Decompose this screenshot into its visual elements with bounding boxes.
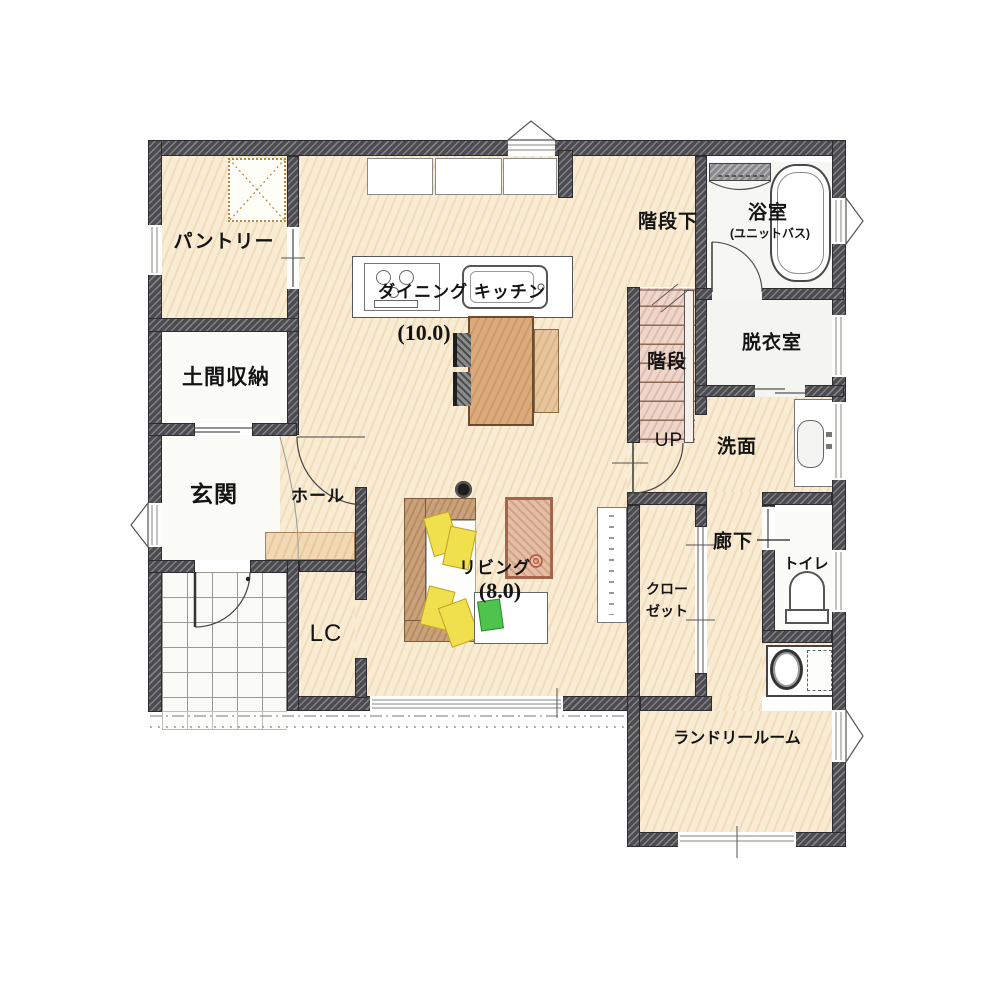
stairs-up-label: UP	[655, 430, 683, 452]
dining-kitchen-size: (10.0)	[397, 320, 450, 346]
entrance-label: 玄関	[190, 475, 238, 509]
bathroom-sublabel: (ユニットバス)	[730, 225, 810, 242]
stairs-label: 階段	[647, 347, 687, 374]
doma-storage-label: 土間収納	[182, 361, 270, 391]
changing-room-label: 脱衣室	[742, 328, 802, 355]
washroom-label: 洗面	[717, 432, 757, 459]
closet-label-line1: クロー	[646, 579, 688, 599]
plan-linework	[0, 0, 995, 1000]
bathroom-label: 浴室	[748, 198, 788, 225]
floor-plan: パントリー 土間収納 玄関 ホール LC ダイニング キッチン (10.0) リ…	[0, 0, 995, 1000]
laundry-room-label: ランドリールーム	[673, 724, 801, 748]
living-label: リビング	[459, 554, 531, 579]
closet-label-line2: ゼット	[646, 601, 688, 621]
corridor-label: 廊下	[713, 527, 753, 554]
pantry-label: パントリー	[174, 227, 275, 254]
under-stairs-label: 階段下	[638, 207, 698, 234]
dining-kitchen-label: ダイニング キッチン	[378, 278, 546, 303]
hall-label: ホール	[291, 482, 345, 507]
living-size: (8.0)	[479, 578, 521, 604]
living-closet-label: LC	[310, 620, 343, 648]
toilet-label: トイレ	[783, 553, 828, 574]
